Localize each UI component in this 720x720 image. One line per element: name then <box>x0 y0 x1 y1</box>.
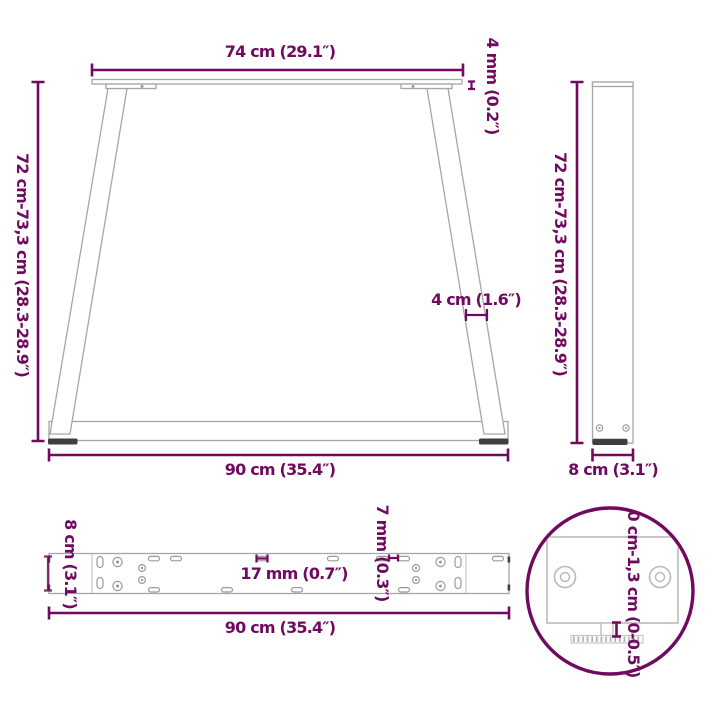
front-top-width-label: 74 cm (29.1″) <box>225 44 335 60</box>
plate-screw-dot-icon <box>116 561 119 564</box>
side-top-plate <box>593 82 634 87</box>
plate-slot-horizontal <box>399 588 410 592</box>
plate-slot-length-label: 17 mm (0.7″) <box>240 566 347 582</box>
front-strut-width-label: 4 cm (1.6″) <box>431 292 521 308</box>
bracket-screw-icon <box>141 85 144 88</box>
foot-detail-contents <box>547 537 678 643</box>
plate-slot-horizontal <box>328 556 339 560</box>
front-left-strut <box>50 89 127 435</box>
detail-screw-hole-inner <box>656 573 665 582</box>
front-height-label: 72 cm-73,3 cm (28.3-28.9″) <box>14 153 30 377</box>
plate-length-label: 90 cm (35.4″) <box>225 620 335 636</box>
dim-line-height-side <box>571 82 584 443</box>
front-bottom-width-label: 90 cm (35.4″) <box>225 462 335 478</box>
plate-slot-horizontal <box>222 588 233 592</box>
plate-slot-vertical <box>455 578 461 589</box>
front-left-foot <box>48 439 78 445</box>
side-screw-dot-icon <box>598 427 600 429</box>
diagram-drawing <box>0 0 720 720</box>
foot-adjust-range-label: 0 cm-1,3 cm (0-0.5″) <box>625 510 641 677</box>
plate-screw-dot-icon <box>439 585 442 588</box>
plate-slot-vertical <box>455 557 461 568</box>
front-right-foot <box>479 439 509 445</box>
foot-detail-view <box>527 508 693 674</box>
front-plate-thickness-label: 4 mm (0.2″) <box>484 38 500 135</box>
plate-screw-dot-icon <box>141 567 143 569</box>
detail-screw-hole-inner <box>561 573 570 582</box>
plate-end-mark <box>508 557 511 563</box>
plate-slot-vertical <box>97 578 103 589</box>
dim-line-4mm <box>468 82 475 90</box>
plate-slot-vertical <box>97 557 103 568</box>
side-width-label: 8 cm (3.1″) <box>568 462 658 478</box>
plate-end-mark <box>508 585 511 591</box>
plate-slot-horizontal <box>399 556 410 560</box>
dim-line-74cm <box>92 64 463 77</box>
plate-slot-horizontal <box>171 556 182 560</box>
side-foot <box>593 439 628 445</box>
plate-slot-horizontal <box>292 588 303 592</box>
plate-screw-dot-icon <box>116 585 119 588</box>
plate-hole-width-label: 7 mm (0.3″) <box>374 505 390 602</box>
front-bottom-bar <box>49 422 508 441</box>
plate-screw-dot-icon <box>415 567 417 569</box>
plate-slot-horizontal <box>493 556 504 560</box>
side-view <box>593 82 634 445</box>
front-right-bracket <box>401 84 452 89</box>
side-height-label: 72 cm-73,3 cm (28.3-28.9″) <box>552 152 568 376</box>
front-top-plate <box>92 80 462 85</box>
bracket-screw-icon <box>412 85 415 88</box>
side-leg-body <box>593 82 634 443</box>
plate-slot-horizontal <box>149 556 160 560</box>
plate-screw-dot-icon <box>141 579 143 581</box>
dim-line-height-front <box>32 82 45 441</box>
plate-slot-horizontal <box>149 588 160 592</box>
table-leg-dimension-diagram: 74 cm (29.1″) 4 mm (0.2″) 72 cm-73,3 cm … <box>0 0 720 720</box>
detail-foot-stem <box>601 623 613 636</box>
plate-width-label: 8 cm (3.1″) <box>62 519 78 609</box>
front-right-strut <box>427 89 505 435</box>
side-screw-dot-icon <box>625 427 627 429</box>
plate-screw-dot-icon <box>439 561 442 564</box>
front-view <box>48 80 509 445</box>
front-left-bracket <box>106 84 156 89</box>
plate-screw-dot-icon <box>415 579 417 581</box>
